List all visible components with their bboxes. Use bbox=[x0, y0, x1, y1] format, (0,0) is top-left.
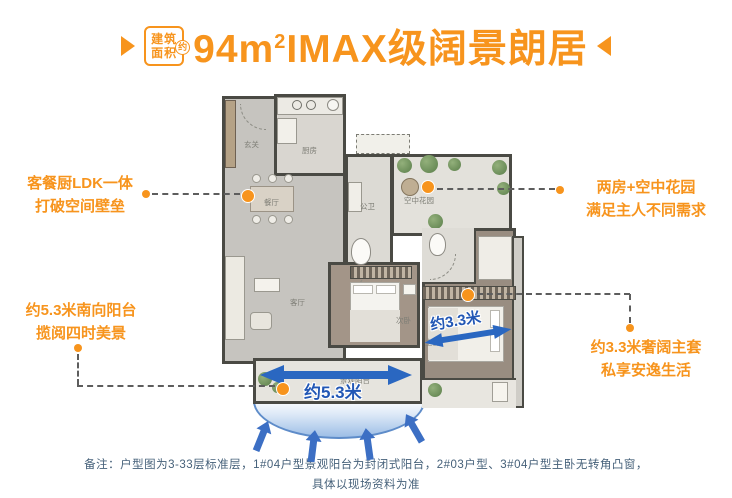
callout-right-top-line1: 两房+空中花园 bbox=[566, 176, 726, 199]
dashed-connector bbox=[77, 385, 275, 387]
plant-icon bbox=[448, 158, 461, 171]
callout-left-top: 客餐厨LDK一体 打破空间壁垒 bbox=[14, 172, 146, 218]
room-label-sky-garden: 空中花园 bbox=[404, 196, 434, 205]
balcony-measure-label: 约5.3米 bbox=[304, 378, 362, 403]
callout-right-bottom-line1: 约3.3米奢阔主套 bbox=[568, 336, 724, 359]
callout-right-bottom: 约3.3米奢阔主套 私享安逸生活 bbox=[568, 336, 724, 382]
dashed-connector bbox=[629, 294, 631, 323]
plant-icon bbox=[397, 158, 412, 173]
balcony-unit bbox=[492, 382, 508, 402]
note-line2: 具体以现场资料为准 bbox=[0, 475, 732, 495]
building-area-badge: 建筑 面积 约 bbox=[144, 26, 184, 66]
nightstand bbox=[403, 284, 416, 295]
room-label-bath: 公卫 bbox=[360, 202, 375, 211]
fridge bbox=[277, 118, 297, 144]
pillow bbox=[376, 285, 396, 294]
dining-chair bbox=[268, 215, 277, 224]
plan-marker-dot bbox=[421, 180, 435, 194]
bedroom2-wardrobe bbox=[350, 266, 412, 279]
callout-left-bottom-line1: 约5.3米南向阳台 bbox=[6, 299, 156, 322]
master-toilet bbox=[429, 233, 446, 256]
plant-icon bbox=[420, 155, 438, 173]
bed-blanket bbox=[350, 310, 400, 342]
connector-dot bbox=[74, 344, 82, 352]
title-right-triangle-icon bbox=[597, 36, 611, 56]
kitchen-sink bbox=[327, 99, 339, 111]
callout-left-top-line1: 客餐厨LDK一体 bbox=[14, 172, 146, 195]
dining-chair bbox=[268, 174, 277, 183]
connector-dot bbox=[626, 324, 634, 332]
callout-right-top: 两房+空中花园 满足主人不同需求 bbox=[566, 176, 726, 222]
dining-chair bbox=[284, 215, 293, 224]
area-unit-sup: 2 bbox=[274, 31, 286, 53]
pillow bbox=[353, 285, 373, 294]
lounge-chair bbox=[250, 312, 272, 330]
plan-marker-dot bbox=[241, 189, 255, 203]
headline: IMAX级阔景朗居 bbox=[286, 28, 588, 71]
garden-chair bbox=[401, 178, 419, 196]
master-closet bbox=[478, 236, 512, 280]
badge-line1: 建筑 bbox=[151, 32, 177, 46]
room-label-entry: 玄关 bbox=[244, 140, 259, 149]
connector-dot bbox=[142, 190, 150, 198]
plan-marker-dot bbox=[461, 288, 475, 302]
dashed-connector bbox=[477, 293, 630, 295]
room-label-living: 客厅 bbox=[290, 298, 305, 307]
plan-marker-dot bbox=[276, 382, 290, 396]
plant-icon bbox=[492, 160, 507, 175]
room-label-bedroom2: 次卧 bbox=[396, 316, 411, 325]
callout-left-bottom-line2: 揽阅四时美景 bbox=[6, 322, 156, 345]
connector-dot bbox=[556, 186, 564, 194]
area-number: 94 bbox=[193, 28, 238, 71]
floorplan-poster: 建筑 面积 约 94m2IMAX级阔景朗居 客餐厨LDK一体 打破空间壁垒 约5… bbox=[0, 0, 732, 498]
room-label-kitchen: 厨房 bbox=[302, 146, 317, 155]
sofa bbox=[225, 256, 245, 340]
dining-chair bbox=[284, 174, 293, 183]
stove-burner bbox=[292, 100, 302, 110]
callout-left-top-line2: 打破空间壁垒 bbox=[14, 195, 146, 218]
dashed-connector bbox=[152, 193, 240, 195]
floor-plan: 玄关 厨房 餐厅 公卫 空中花园 客厅 次卧 主卧 景观阳台 约5.3米 约3.… bbox=[216, 86, 526, 416]
room-label-dining: 餐厅 bbox=[264, 198, 279, 207]
dashed-connector bbox=[437, 188, 555, 190]
shoe-cabinet bbox=[225, 100, 236, 168]
stove-burner bbox=[306, 100, 316, 110]
ac-platform bbox=[356, 134, 410, 154]
view-up-arrow-icon bbox=[249, 418, 276, 454]
page-title: 建筑 面积 约 94m2IMAX级阔景朗居 bbox=[0, 18, 732, 74]
toilet bbox=[351, 238, 371, 265]
dashed-connector bbox=[77, 354, 79, 385]
title-text: 94m2IMAX级阔景朗居 bbox=[193, 18, 588, 74]
dining-chair bbox=[252, 174, 261, 183]
plant-icon bbox=[428, 214, 443, 229]
badge-line2: 面积 bbox=[151, 46, 177, 60]
callout-right-top-line2: 满足主人不同需求 bbox=[566, 199, 726, 222]
callout-left-bottom: 约5.3米南向阳台 揽阅四时美景 bbox=[6, 299, 156, 345]
title-left-triangle-icon bbox=[121, 36, 135, 56]
coffee-table bbox=[254, 278, 280, 292]
dining-chair bbox=[252, 215, 261, 224]
approx-circle-badge: 约 bbox=[175, 40, 190, 55]
area-unit: m bbox=[239, 28, 275, 71]
callout-right-bottom-line2: 私享安逸生活 bbox=[568, 359, 724, 382]
plant-icon bbox=[428, 383, 442, 397]
